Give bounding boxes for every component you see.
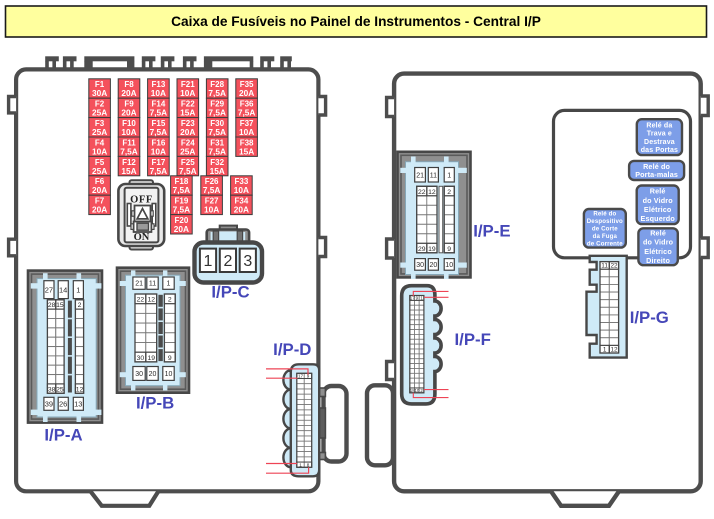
svg-text:22: 22 bbox=[137, 297, 145, 304]
svg-text:Relé: Relé bbox=[650, 187, 666, 196]
svg-text:30A: 30A bbox=[92, 88, 107, 98]
svg-text:25A: 25A bbox=[92, 108, 107, 118]
svg-text:30: 30 bbox=[135, 371, 143, 378]
svg-text:15A: 15A bbox=[239, 146, 254, 156]
svg-text:10: 10 bbox=[445, 262, 453, 269]
svg-text:11: 11 bbox=[430, 172, 437, 179]
svg-text:10A: 10A bbox=[121, 127, 136, 137]
svg-text:2: 2 bbox=[168, 297, 172, 304]
svg-text:7,5A: 7,5A bbox=[120, 146, 138, 156]
svg-text:10A: 10A bbox=[151, 88, 166, 98]
svg-text:de Corrente: de Corrente bbox=[587, 241, 623, 248]
svg-text:20: 20 bbox=[149, 371, 157, 378]
svg-text:30: 30 bbox=[137, 355, 145, 362]
svg-text:das Portas: das Portas bbox=[641, 147, 678, 154]
svg-text:10A: 10A bbox=[180, 88, 195, 98]
svg-text:1: 1 bbox=[167, 281, 171, 288]
svg-text:25A: 25A bbox=[92, 127, 107, 137]
svg-text:15A: 15A bbox=[210, 166, 225, 176]
svg-text:11: 11 bbox=[149, 281, 156, 288]
svg-text:12: 12 bbox=[148, 297, 156, 304]
svg-text:Porta-malas: Porta-malas bbox=[635, 170, 678, 179]
svg-text:30: 30 bbox=[416, 262, 424, 269]
svg-text:20: 20 bbox=[430, 262, 438, 269]
svg-text:Relé do: Relé do bbox=[593, 210, 616, 217]
svg-text:21: 21 bbox=[135, 281, 143, 288]
svg-text:I/P-A: I/P-A bbox=[44, 426, 82, 445]
svg-text:ON: ON bbox=[134, 232, 150, 243]
svg-text:10: 10 bbox=[414, 388, 419, 393]
svg-text:da Fuga: da Fuga bbox=[593, 233, 618, 240]
svg-text:de Corte: de Corte bbox=[592, 226, 618, 233]
svg-text:20A: 20A bbox=[239, 88, 254, 98]
svg-text:25A: 25A bbox=[180, 146, 195, 156]
svg-text:17: 17 bbox=[298, 374, 304, 379]
svg-text:1: 1 bbox=[603, 346, 607, 353]
svg-text:1: 1 bbox=[299, 462, 302, 467]
svg-text:19: 19 bbox=[148, 355, 156, 362]
svg-text:20A: 20A bbox=[92, 185, 107, 195]
svg-text:Relé da: Relé da bbox=[646, 122, 672, 129]
svg-text:7,5A: 7,5A bbox=[150, 166, 168, 176]
svg-text:20A: 20A bbox=[92, 205, 107, 215]
svg-text:19: 19 bbox=[428, 246, 436, 253]
svg-text:12: 12 bbox=[428, 189, 436, 196]
svg-text:I/P-D: I/P-D bbox=[273, 340, 311, 359]
svg-text:20A: 20A bbox=[174, 224, 189, 234]
svg-text:9: 9 bbox=[447, 246, 451, 253]
svg-text:17: 17 bbox=[410, 295, 415, 300]
svg-text:7,5A: 7,5A bbox=[173, 205, 191, 215]
svg-text:15A: 15A bbox=[180, 108, 195, 118]
svg-text:20A: 20A bbox=[180, 127, 195, 137]
svg-text:Destrava: Destrava bbox=[644, 139, 675, 146]
svg-text:22: 22 bbox=[610, 263, 618, 270]
svg-text:15: 15 bbox=[56, 302, 64, 309]
svg-text:29: 29 bbox=[418, 246, 426, 253]
svg-text:I/P-B: I/P-B bbox=[136, 394, 174, 413]
svg-text:11: 11 bbox=[601, 263, 608, 270]
svg-text:7,5A: 7,5A bbox=[208, 88, 226, 98]
svg-text:39: 39 bbox=[45, 400, 53, 409]
svg-text:I/P-G: I/P-G bbox=[630, 308, 669, 327]
svg-text:10A: 10A bbox=[234, 185, 249, 195]
svg-text:15A: 15A bbox=[121, 166, 136, 176]
svg-text:do Vidro: do Vidro bbox=[643, 196, 674, 205]
svg-text:1: 1 bbox=[76, 285, 80, 294]
svg-text:38: 38 bbox=[48, 386, 56, 393]
svg-text:10: 10 bbox=[165, 371, 173, 378]
svg-text:12: 12 bbox=[76, 386, 84, 393]
svg-text:25A: 25A bbox=[92, 166, 107, 176]
svg-text:28: 28 bbox=[48, 302, 56, 309]
svg-text:20A: 20A bbox=[121, 108, 136, 118]
svg-text:7,5A: 7,5A bbox=[179, 166, 197, 176]
svg-text:10A: 10A bbox=[204, 205, 219, 215]
svg-text:Trava e: Trava e bbox=[647, 131, 672, 138]
svg-text:7,5A: 7,5A bbox=[208, 108, 226, 118]
svg-text:8: 8 bbox=[307, 462, 310, 467]
svg-text:I/P-F: I/P-F bbox=[455, 330, 491, 349]
svg-text:25: 25 bbox=[56, 386, 64, 393]
svg-text:27: 27 bbox=[45, 285, 53, 294]
svg-text:Despositivo: Despositivo bbox=[587, 218, 623, 225]
svg-text:1: 1 bbox=[447, 172, 451, 179]
svg-text:10A: 10A bbox=[239, 127, 254, 137]
svg-text:9: 9 bbox=[168, 355, 172, 362]
svg-text:1: 1 bbox=[204, 253, 213, 270]
svg-text:7,5A: 7,5A bbox=[150, 127, 168, 137]
svg-text:Elétrico: Elétrico bbox=[644, 247, 672, 256]
svg-text:Elétrico: Elétrico bbox=[644, 205, 672, 214]
svg-text:3: 3 bbox=[243, 253, 252, 270]
svg-text:20A: 20A bbox=[234, 205, 249, 215]
svg-text:20A: 20A bbox=[121, 88, 136, 98]
svg-text:2: 2 bbox=[447, 189, 451, 196]
svg-text:Esquerdo: Esquerdo bbox=[641, 214, 676, 223]
svg-text:7,5A: 7,5A bbox=[203, 185, 221, 195]
svg-text:10A: 10A bbox=[151, 146, 166, 156]
svg-text:do Vidro: do Vidro bbox=[643, 238, 674, 247]
svg-text:7,5A: 7,5A bbox=[238, 108, 256, 118]
svg-text:7,5A: 7,5A bbox=[208, 127, 226, 137]
svg-text:21: 21 bbox=[416, 172, 424, 179]
svg-text:13: 13 bbox=[74, 400, 82, 409]
svg-text:2: 2 bbox=[78, 302, 82, 309]
svg-text:10A: 10A bbox=[92, 146, 107, 156]
svg-text:I/P-E: I/P-E bbox=[473, 222, 510, 241]
svg-text:2: 2 bbox=[223, 253, 232, 270]
svg-text:Caixa de Fusíveis no Painel de: Caixa de Fusíveis no Painel de Instrumen… bbox=[171, 14, 541, 29]
svg-text:7,5A: 7,5A bbox=[150, 108, 168, 118]
svg-text:7,5A: 7,5A bbox=[173, 185, 191, 195]
svg-text:OFF: OFF bbox=[130, 195, 153, 206]
svg-text:Direito: Direito bbox=[646, 256, 670, 265]
svg-text:14: 14 bbox=[59, 285, 67, 294]
svg-text:26: 26 bbox=[59, 400, 67, 409]
svg-text:7,5A: 7,5A bbox=[208, 146, 226, 156]
svg-text:22: 22 bbox=[418, 189, 426, 196]
svg-text:Relé: Relé bbox=[650, 229, 666, 238]
svg-text:I/P-C: I/P-C bbox=[211, 283, 249, 302]
svg-text:12: 12 bbox=[610, 346, 618, 353]
